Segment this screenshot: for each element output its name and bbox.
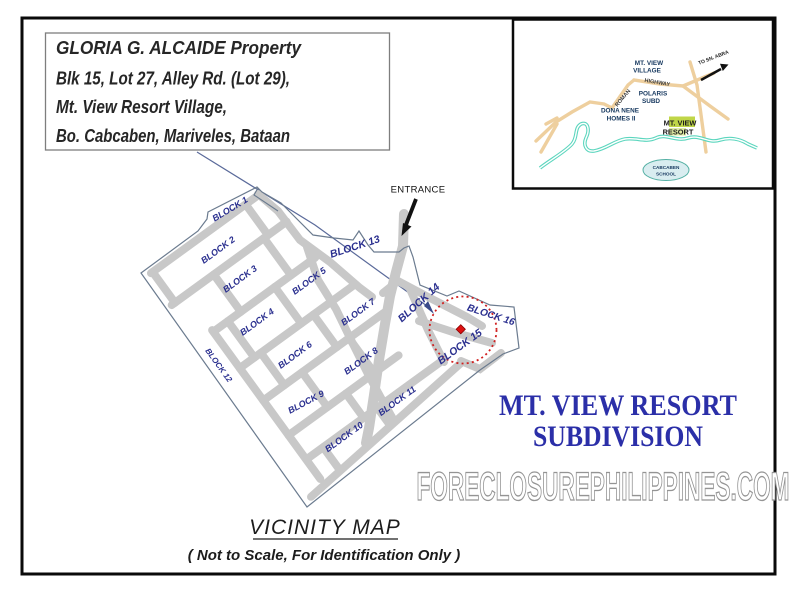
svg-text:Blk 15, Lot 27, Alley Rd. (Lot: Blk 15, Lot 27, Alley Rd. (Lot 29), [56, 69, 290, 89]
svg-text:HOMES II: HOMES II [607, 116, 636, 123]
svg-text:( Not to Scale, For Identifica: ( Not to Scale, For Identification Only … [188, 547, 461, 564]
svg-text:CABCABEN: CABCABEN [653, 165, 680, 170]
svg-text:Mt. View Resort Village,: Mt. View Resort Village, [56, 97, 227, 117]
svg-text:MT. VIEW: MT. VIEW [635, 60, 664, 67]
svg-text:RESORT: RESORT [663, 128, 694, 137]
svg-text:GLORIA G. ALCAIDE Property: GLORIA G. ALCAIDE Property [56, 38, 302, 58]
svg-text:MT. VIEW: MT. VIEW [664, 119, 697, 128]
svg-text:MT. VIEW RESORT: MT. VIEW RESORT [499, 389, 737, 422]
svg-text:VILLAGE: VILLAGE [633, 68, 661, 75]
svg-text:Bo. Cabcaben, Mariveles, Bataa: Bo. Cabcaben, Mariveles, Bataan [56, 126, 290, 146]
svg-text:DONA NENE: DONA NENE [601, 108, 640, 115]
svg-text:VICINITY MAP: VICINITY MAP [249, 516, 401, 539]
svg-text:SCHOOL: SCHOOL [656, 172, 676, 177]
svg-text:SUBDIVISION: SUBDIVISION [533, 420, 703, 453]
svg-text:SUBD: SUBD [642, 98, 660, 105]
svg-text:POLARIS: POLARIS [639, 91, 668, 98]
svg-text:FORECLOSUREPHILIPPINES.COM: FORECLOSUREPHILIPPINES.COM [417, 465, 790, 509]
svg-text:ENTRANCE: ENTRANCE [391, 185, 446, 196]
